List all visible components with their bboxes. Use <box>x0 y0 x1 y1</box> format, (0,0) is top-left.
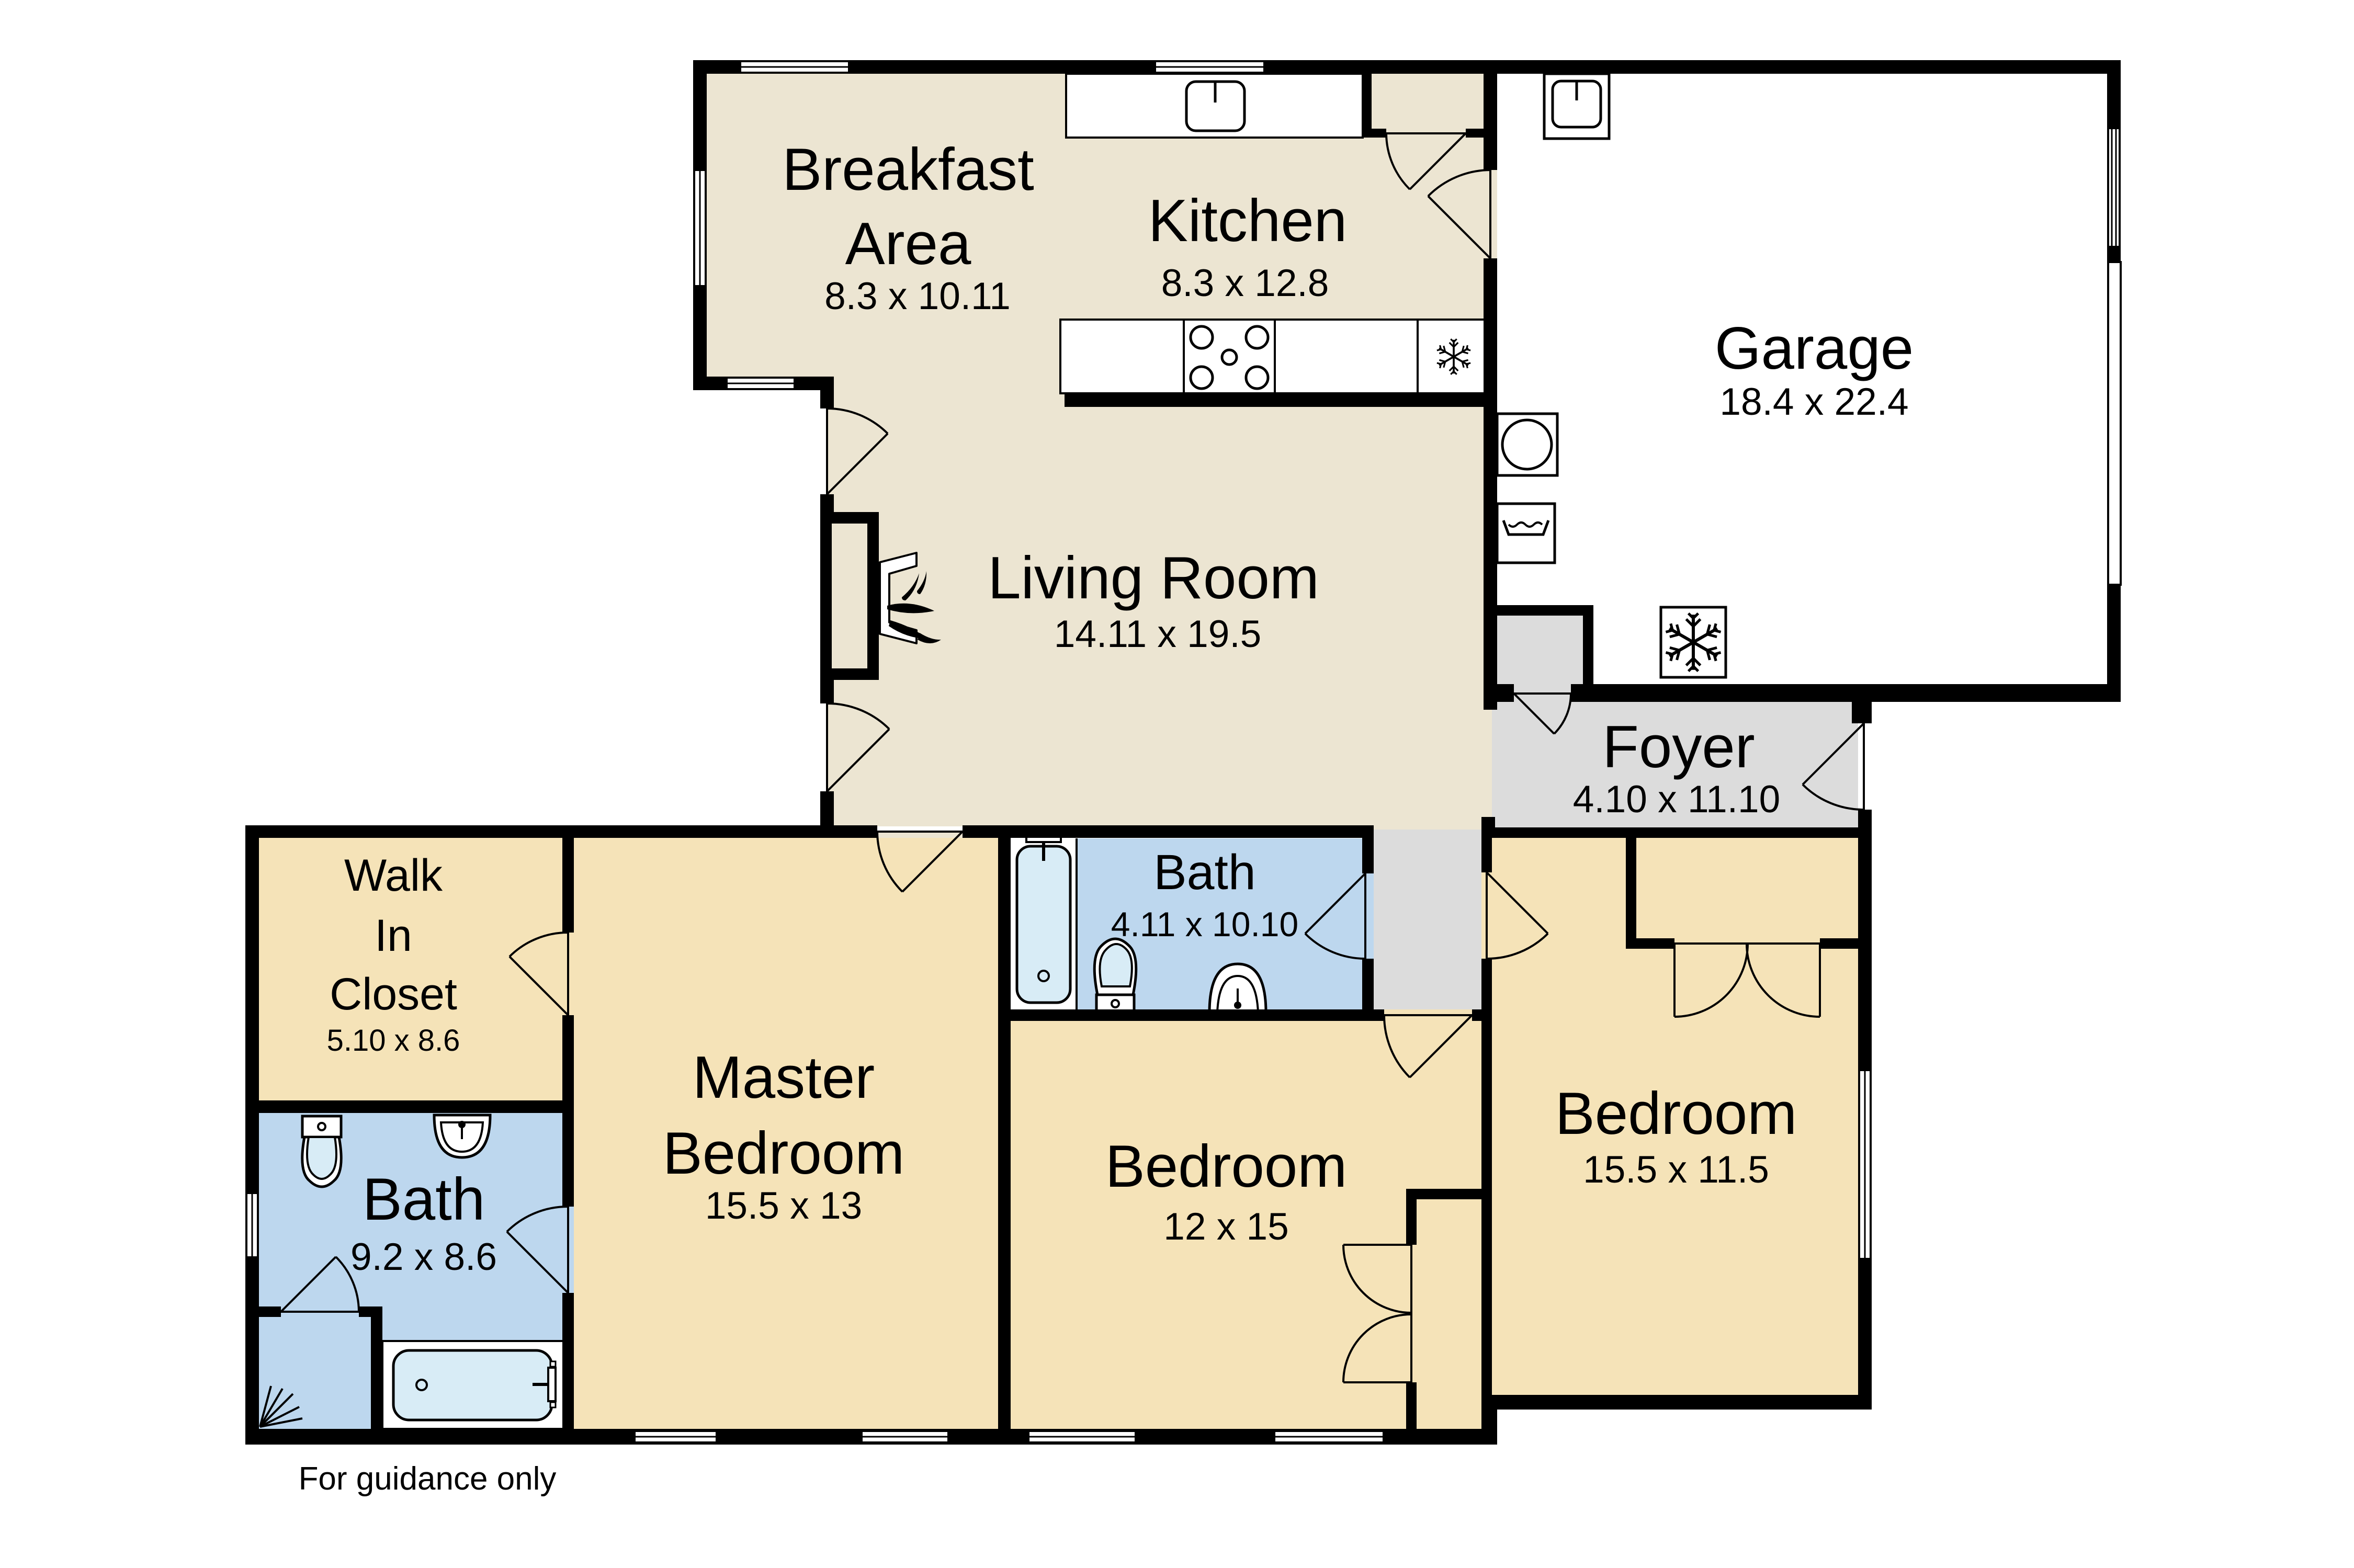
svg-text:Garage: Garage <box>1715 315 1914 382</box>
svg-text:Bath: Bath <box>1153 845 1255 900</box>
svg-text:Living Room: Living Room <box>988 545 1319 611</box>
svg-text:In: In <box>375 911 412 961</box>
svg-text:5.10 x 8.6: 5.10 x 8.6 <box>327 1024 460 1058</box>
svg-text:14.11 x 19.5: 14.11 x 19.5 <box>1054 613 1261 655</box>
svg-text:12 x 15: 12 x 15 <box>1163 1206 1288 1248</box>
svg-text:8.3 x 10.11: 8.3 x 10.11 <box>824 275 1011 317</box>
svg-text:Walk: Walk <box>344 850 443 901</box>
svg-text:Bedroom: Bedroom <box>1555 1081 1797 1147</box>
svg-text:9.2 x 8.6: 9.2 x 8.6 <box>350 1236 497 1278</box>
svg-text:4.10 x 11.10: 4.10 x 11.10 <box>1573 778 1780 821</box>
svg-text:Master: Master <box>693 1044 875 1111</box>
svg-text:15.5 x 11.5: 15.5 x 11.5 <box>1583 1149 1769 1191</box>
svg-text:Bedroom: Bedroom <box>1105 1133 1348 1200</box>
svg-text:For guidance only: For guidance only <box>299 1461 557 1497</box>
svg-text:Bath: Bath <box>363 1166 485 1233</box>
svg-text:Breakfast: Breakfast <box>782 137 1034 203</box>
svg-text:Kitchen: Kitchen <box>1148 188 1347 254</box>
svg-text:15.5 x 13: 15.5 x 13 <box>705 1185 862 1227</box>
svg-text:Area: Area <box>845 211 971 277</box>
svg-text:8.3 x 12.8: 8.3 x 12.8 <box>1161 262 1329 304</box>
svg-text:4.11 x 10.10: 4.11 x 10.10 <box>1111 905 1298 944</box>
svg-text:Foyer: Foyer <box>1602 714 1755 780</box>
svg-text:Bedroom: Bedroom <box>663 1120 905 1187</box>
svg-text:Closet: Closet <box>330 969 457 1019</box>
svg-text:18.4 x 22.4: 18.4 x 22.4 <box>1719 381 1908 423</box>
